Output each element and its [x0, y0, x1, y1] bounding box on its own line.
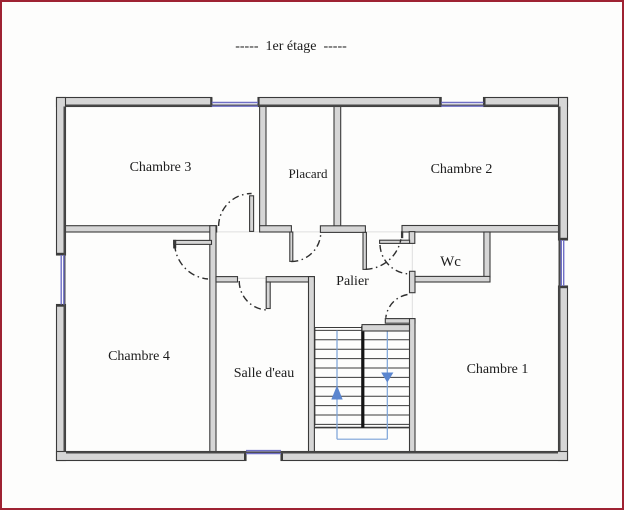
svg-text:Chambre 2: Chambre 2	[431, 162, 493, 177]
svg-text:Chambre 4: Chambre 4	[108, 349, 170, 364]
svg-text:Placard: Placard	[289, 166, 328, 181]
svg-text:Salle d'eau: Salle d'eau	[234, 366, 294, 381]
svg-text:----- 1er étage -----: ----- 1er étage -----	[235, 39, 347, 54]
svg-text:Wc: Wc	[440, 254, 461, 270]
svg-text:Chambre 1: Chambre 1	[467, 362, 529, 377]
svg-text:Chambre 3: Chambre 3	[130, 160, 192, 175]
svg-text:Palier: Palier	[336, 274, 369, 289]
